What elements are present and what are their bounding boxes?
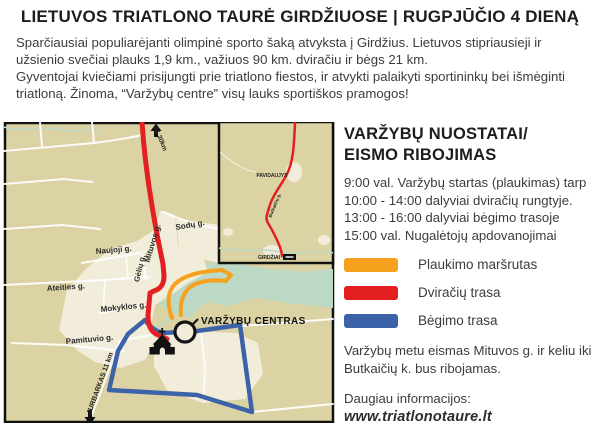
legend-label: Dviračių trasa	[418, 285, 501, 300]
intro-paragraph-1: Sparčiausiai populiarėjanti olimpinė spo…	[16, 34, 588, 68]
poster: LIETUVOS TRIATLONO TAURĖ GIRDŽIUOSE | RU…	[0, 0, 600, 426]
legend-label: Plaukimo maršrutas	[418, 257, 537, 272]
bike-route-swatch	[344, 286, 398, 300]
inset-town-girdziai: GIRDŽIAI	[258, 253, 281, 261]
swim-route-swatch	[344, 258, 398, 272]
more-info-block: Daugiau informacijos: www.triatlonotaure…	[344, 390, 592, 426]
run-route-swatch	[344, 314, 398, 328]
legend-row-bike: Dviračių trasa	[344, 285, 592, 300]
rules-panel: VARŽYBŲ NUOSTATAI/ EISMO RIBOJIMAS 9:00 …	[344, 124, 592, 426]
event-map: VARŽYBŲ CENTRAS Mituvos g. Sodų g. Naujo…	[3, 122, 335, 423]
rules-heading-line2: EISMO RIBOJIMAS	[344, 145, 592, 166]
legend-row-swim: Plaukimo maršrutas	[344, 257, 592, 272]
legend-row-run: Bėgimo trasa	[344, 313, 592, 328]
competition-center-marker	[175, 319, 198, 342]
traffic-restriction-note: Varžybų metu eismas Mituvos g. ir keliu …	[344, 342, 592, 377]
schedule-item: 9:00 val. Varžybų startas (plaukimas) ta…	[344, 174, 592, 209]
page-title: LIETUVOS TRIATLONO TAURĖ GIRDŽIUOSE | RU…	[0, 0, 600, 27]
inset-map: PAVIDAUJYS GIRDŽIAI Butkaičių g.	[219, 122, 333, 263]
legend-label: Bėgimo trasa	[418, 313, 498, 328]
inset-town-pavidaujys: PAVIDAUJYS	[256, 173, 288, 179]
route-legend: Plaukimo maršrutas Dviračių trasa Bėgimo…	[344, 257, 592, 328]
competition-center-label: VARŽYBŲ CENTRAS	[201, 314, 306, 327]
more-info-label: Daugiau informacijos:	[344, 390, 592, 408]
intro-paragraph-2: Gyventojai kviečiami prisijungti prie tr…	[16, 68, 588, 102]
rules-heading-line1: VARŽYBŲ NUOSTATAI/	[344, 124, 592, 145]
schedule: 9:00 val. Varžybų startas (plaukimas) ta…	[344, 174, 592, 244]
rules-heading: VARŽYBŲ NUOSTATAI/ EISMO RIBOJIMAS	[344, 124, 592, 166]
road-number-badge	[283, 254, 296, 260]
intro-text: Sparčiausiai populiarėjanti olimpinė spo…	[16, 34, 588, 102]
website-link[interactable]: www.triatlonotaure.lt	[344, 408, 592, 426]
schedule-item: 13:00 - 16:00 dalyviai bėgimo trasoje	[344, 209, 592, 227]
schedule-item: 15:00 val. Nugalėtojų apdovanojimai	[344, 227, 592, 245]
